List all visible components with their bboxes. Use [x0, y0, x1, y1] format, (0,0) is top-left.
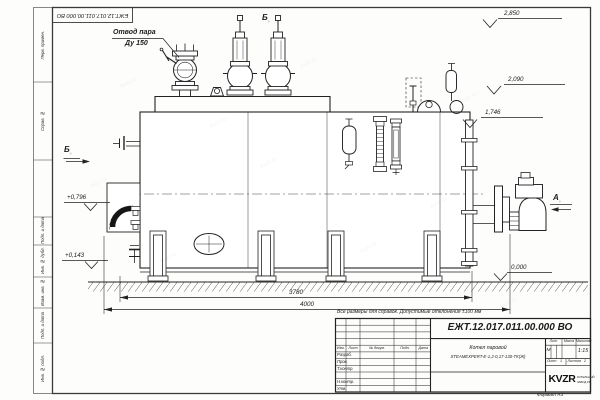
- title-doc-number: ЕЖТ.12.017.011.00.000 ВО: [431, 323, 589, 333]
- dimension-3780-text: 3780: [271, 290, 321, 296]
- view-mark: ○: [70, 152, 72, 156]
- elevation-2090: 2,090: [508, 77, 523, 83]
- col-doc: № докум.: [360, 347, 394, 351]
- product-name-line1: Котел паровой: [431, 346, 545, 351]
- margin-stamp-inv-dubl: Инв. № дубл.: [34, 245, 51, 277]
- lit-label: Лит.: [546, 340, 563, 344]
- safety-valve-1: [223, 16, 257, 96]
- scale-label: Масштаб: [576, 340, 590, 343]
- sheet-value: 1: [560, 360, 562, 364]
- logo-text: KVZR: [549, 373, 576, 385]
- margin-stamp-perv-primen: Перв. примен.: [34, 8, 51, 83]
- linework-svg: [0, 0, 600, 400]
- elevation-1746: 1,746: [485, 110, 500, 116]
- mass-label: Масса: [562, 340, 576, 344]
- scale-value: 1:15: [576, 349, 590, 354]
- sheet-label: Лист: [547, 360, 557, 364]
- burner-fan-unit: [473, 173, 546, 233]
- elevation-0796: +0,796: [67, 195, 86, 201]
- view-mark: ○: [268, 20, 270, 24]
- company-line2: ЗАВОД РФ: [577, 380, 595, 384]
- product-name-line2: STEAMEXPERT-Е-1,2-0,17-130-ТК(Ж): [431, 355, 545, 359]
- safety-valve-2: [261, 16, 295, 96]
- top-right-fittings: [406, 64, 463, 114]
- manhole: [194, 234, 224, 255]
- format-label: Формат А3: [520, 394, 580, 399]
- view-arrow-a: [550, 205, 572, 212]
- row-razrab: Разраб.: [337, 353, 352, 357]
- view-mark: ○: [559, 199, 561, 203]
- view-arrow-b: [64, 159, 91, 164]
- margin-stamp-podp-data-1: Подп. и дата: [34, 217, 51, 245]
- margin-stamp-sprav-no: Справ. №: [34, 82, 51, 160]
- margin-stamp-podp-data-2: Подп. и дата: [34, 308, 51, 343]
- col-data: Дата: [416, 347, 431, 351]
- col-izm: Изм.: [336, 347, 347, 351]
- row-prov: Пров.: [337, 360, 348, 364]
- view-a-label: А○: [553, 194, 561, 204]
- steam-outlet-callout-line1: Отвод пара: [113, 29, 156, 36]
- margin-stamp-vzam-inv: Взам. инв. №: [34, 277, 51, 308]
- row-utv: Утв.: [337, 387, 346, 391]
- view-b-label-left: Б○: [64, 146, 72, 156]
- company-logo: KVZR КОТЕЛЬНЫЙ ЗАВОД РФ: [547, 369, 589, 389]
- row-nkontr: Н.контр.: [337, 380, 354, 384]
- col-podp: Подп.: [394, 347, 416, 351]
- drawing-sheet: kvzr.ru kvzr.ru kvzr.ru kvzr.ru kvzr.ru …: [0, 0, 600, 400]
- view-b-label-top: Б○: [262, 14, 270, 24]
- sheets-label: Листов: [568, 360, 581, 364]
- margin-stamp-inv-podl: Инв. № подл.: [34, 343, 51, 393]
- sheets-value: 2: [584, 360, 586, 364]
- col-list: Лист: [346, 347, 360, 351]
- lifting-lug: [211, 88, 224, 97]
- elevation-0143: +0,143: [65, 253, 84, 259]
- steam-outlet-valve: [160, 44, 198, 97]
- dimension-4000-text: 4000: [282, 302, 332, 308]
- row-tkontr: Т.контр.: [337, 367, 354, 371]
- top-doc-number: ЕЖТ.12.017.011.00.000 ВО: [53, 8, 132, 22]
- ground-hatch: [88, 282, 588, 292]
- reference-note: Все размеры для справок. Допустимые откл…: [337, 310, 481, 315]
- elevation-2850: 2,850: [504, 11, 519, 17]
- company-line1: КОТЕЛЬНЫЙ: [577, 375, 595, 379]
- lit-value: М: [546, 349, 552, 354]
- steam-outlet-callout-line2: Ду 150: [125, 40, 148, 47]
- elevation-0000: 0,000: [511, 265, 526, 271]
